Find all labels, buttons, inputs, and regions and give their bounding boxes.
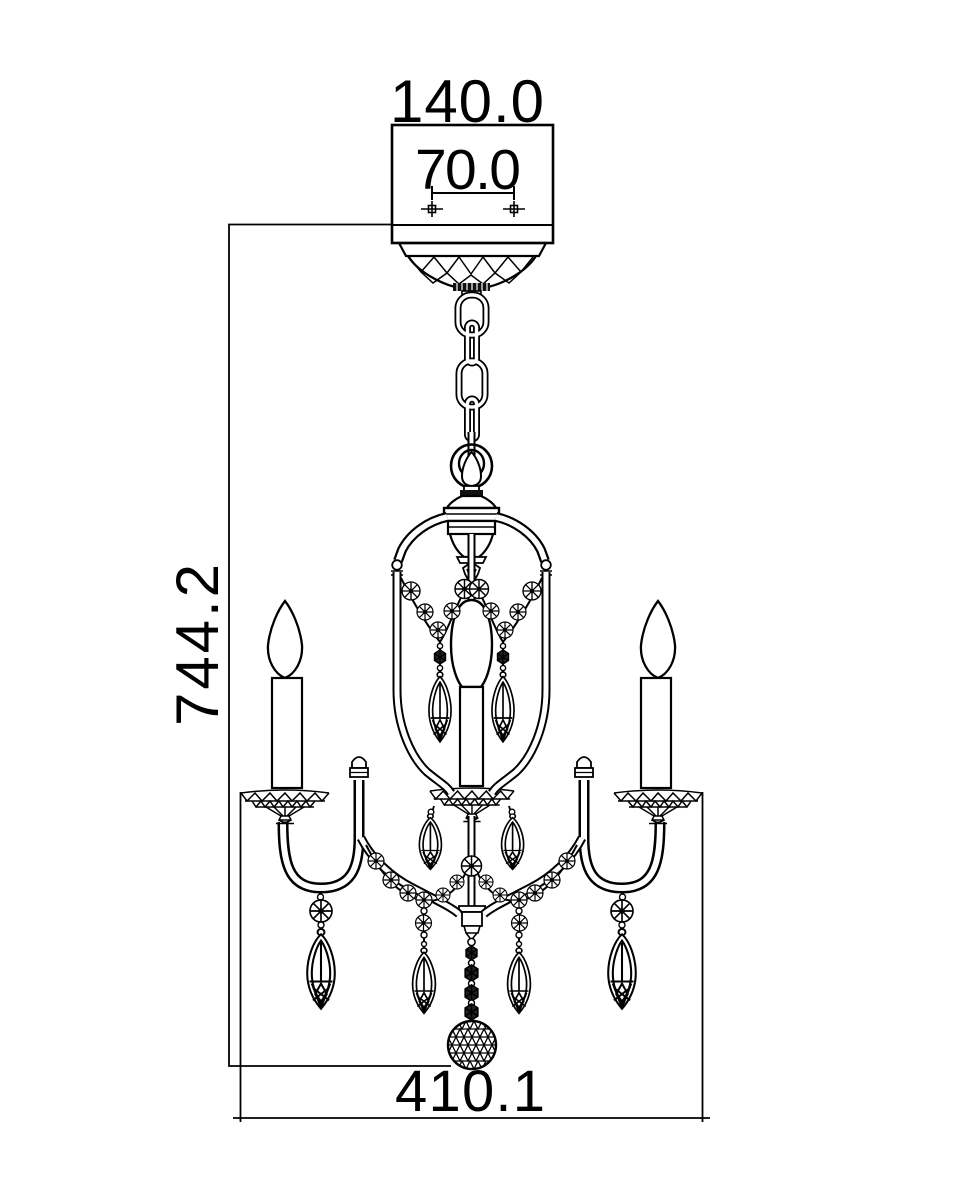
lower-hub bbox=[459, 906, 485, 940]
candle-sleeve bbox=[272, 678, 302, 788]
hanging-loop bbox=[451, 432, 492, 488]
center-candle-sleeve bbox=[460, 687, 483, 786]
dimension-hole-spacing: 70.0 bbox=[415, 138, 521, 202]
crystal-drop bbox=[413, 948, 436, 1013]
candle-left bbox=[241, 601, 329, 824]
candle-bulb bbox=[268, 601, 302, 678]
ceiling-canopy bbox=[399, 243, 546, 295]
candle-bobeche bbox=[241, 790, 329, 824]
left-side-assembly bbox=[241, 517, 468, 1122]
crystal-drop bbox=[429, 672, 451, 742]
chandelier-dimension-drawing: 140.0 70.0 744.2 410.1 bbox=[0, 0, 960, 1200]
height-dimension-frame bbox=[229, 225, 451, 1067]
dimension-canopy-width: 140.0 bbox=[390, 68, 544, 135]
lower-swag bbox=[366, 845, 467, 1013]
hanging-chain bbox=[458, 295, 486, 439]
drawing-svg: 140.0 70.0 744.2 410.1 bbox=[0, 0, 960, 1200]
dimension-overall-width: 410.1 bbox=[395, 1059, 545, 1124]
dimension-overall-height: 744.2 bbox=[164, 564, 231, 726]
arm-post-cap bbox=[350, 757, 368, 777]
crystal-drop bbox=[307, 929, 335, 1009]
mount-hole-right bbox=[503, 201, 525, 217]
arm-bend-drop bbox=[307, 893, 335, 1009]
center-bobeche-drop bbox=[419, 806, 441, 869]
mount-hole-left bbox=[421, 201, 443, 217]
right-side-assembly bbox=[476, 517, 703, 1122]
